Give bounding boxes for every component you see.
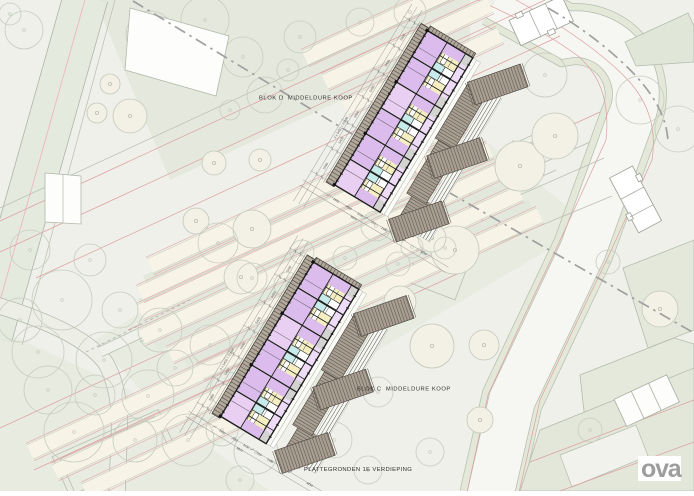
svg-text:PLATTEGRONDEN 1E VERDIEPING: PLATTEGRONDEN 1E VERDIEPING: [304, 467, 412, 473]
svg-text:ova: ova: [641, 455, 683, 483]
svg-text:BLOK C MIDDELDURE KOOP: BLOK C MIDDELDURE KOOP: [357, 387, 451, 393]
svg-text:BLOK D MIDDELDURE KOOP: BLOK D MIDDELDURE KOOP: [259, 96, 353, 102]
